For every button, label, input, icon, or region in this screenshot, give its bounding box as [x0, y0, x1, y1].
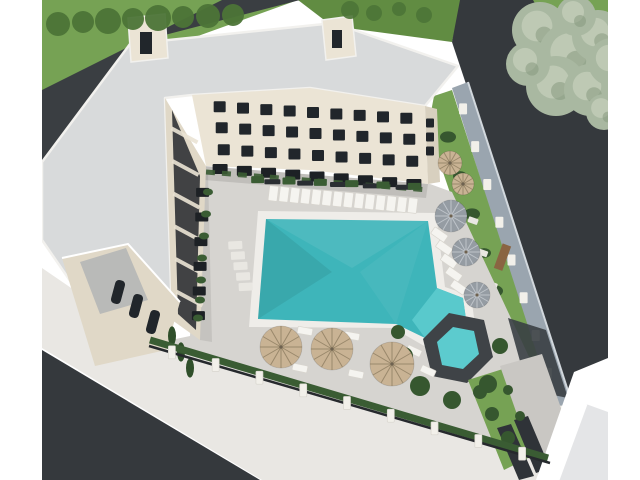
fence-post [168, 346, 175, 359]
potted-plant [503, 385, 513, 395]
hedge-shrub [203, 189, 213, 196]
hedge-planter [408, 183, 421, 190]
window [260, 104, 272, 115]
sunbed [386, 196, 397, 212]
wall-post [508, 255, 516, 266]
sunbed [354, 193, 365, 209]
window [241, 146, 253, 157]
tree [222, 4, 244, 26]
paving-pad [228, 241, 242, 250]
window [377, 111, 389, 122]
sunbed [343, 192, 354, 208]
shrub [410, 376, 430, 396]
window [214, 101, 226, 112]
beige-umbrella [311, 328, 353, 370]
fence-post [431, 422, 438, 435]
ground-patio [194, 262, 207, 271]
gray-umbrella [452, 238, 480, 266]
paving-pad [233, 262, 247, 271]
window [359, 153, 371, 164]
tree [172, 6, 194, 28]
fence-post [475, 435, 482, 448]
bench [264, 179, 280, 184]
sunbed [311, 189, 322, 205]
tree [196, 4, 220, 28]
sunbed [397, 197, 408, 213]
hedge-shrub [193, 315, 203, 322]
window [383, 154, 395, 165]
wall-post [520, 292, 528, 303]
window [312, 150, 324, 161]
wall-post [483, 179, 491, 190]
window [336, 151, 348, 162]
window [310, 128, 322, 139]
fence-post [256, 371, 263, 384]
tree [366, 5, 382, 21]
gray-umbrella [464, 282, 490, 308]
hedge-planter [345, 180, 358, 187]
fence-post [387, 409, 394, 422]
hedge-shrub [196, 277, 206, 284]
window [237, 103, 249, 114]
umbrella-pole [475, 293, 478, 296]
shrub [479, 375, 497, 393]
fence-post [212, 359, 219, 372]
window [218, 144, 230, 155]
roof-access-door [140, 32, 152, 54]
umbrella-pole [279, 345, 282, 348]
sunbed [375, 195, 386, 211]
wall-post [471, 141, 479, 152]
shrub [485, 407, 499, 421]
fence-post [344, 397, 351, 410]
umbrella-pole [448, 161, 451, 164]
beige-umbrella [452, 173, 474, 195]
hedge-planter [314, 179, 327, 186]
window [380, 132, 392, 143]
window [354, 110, 366, 121]
tree [46, 12, 70, 36]
potted-plant [515, 411, 525, 421]
left-margin [0, 0, 42, 480]
shrub [391, 325, 405, 339]
tree [72, 11, 94, 33]
rendering-canvas [0, 0, 640, 480]
wall-post [459, 103, 467, 114]
sunbed [268, 185, 279, 201]
window [330, 108, 342, 119]
window [265, 147, 277, 158]
hedge-shrub [197, 255, 207, 262]
fence-post [519, 447, 526, 460]
window [356, 131, 368, 142]
aerial-rendering [0, 0, 640, 480]
window [284, 106, 296, 117]
cypress-tree [186, 358, 194, 377]
window [216, 122, 228, 133]
sunbed [407, 198, 418, 214]
large-tree-shade [525, 62, 538, 75]
beige-umbrella [438, 151, 462, 175]
gray-umbrella [435, 200, 467, 232]
window [426, 119, 434, 128]
beige-umbrella [370, 342, 414, 386]
bench [330, 182, 346, 187]
bench [297, 181, 313, 186]
sunbed [364, 194, 375, 210]
window [333, 129, 345, 140]
sunbed [289, 187, 300, 203]
shrub [440, 131, 456, 142]
tree [145, 5, 171, 31]
umbrella-pole [449, 214, 452, 217]
large-tree-shade [574, 15, 586, 27]
gable-windows [426, 119, 434, 156]
hedge-planter [283, 178, 296, 185]
paving-pad [231, 251, 245, 260]
window [288, 149, 300, 160]
paving-pad [239, 282, 253, 291]
hedge-shrub [195, 297, 205, 304]
fence-post [300, 384, 307, 397]
tree [95, 8, 121, 34]
wall-post [495, 217, 503, 228]
paving-pad [236, 272, 250, 281]
hedge-shrub [201, 211, 211, 218]
window [239, 124, 251, 135]
window [400, 113, 412, 124]
window [286, 127, 298, 138]
umbrella-pole [464, 250, 467, 253]
window [307, 107, 319, 118]
window [426, 133, 434, 142]
sunbed [300, 188, 311, 204]
tree [392, 2, 406, 16]
bench [363, 183, 379, 188]
tree [416, 7, 432, 23]
window [406, 156, 418, 167]
tree [341, 1, 359, 19]
sunbed [332, 191, 343, 207]
umbrella-pole [330, 347, 333, 350]
umbrella-pole [461, 182, 464, 185]
umbrella-pole [390, 362, 393, 365]
window [263, 125, 275, 136]
shrub [492, 338, 508, 354]
window [403, 134, 415, 145]
window [426, 147, 434, 156]
sunbed [322, 190, 333, 206]
hedge-planter [251, 176, 264, 183]
shrub [443, 391, 461, 409]
sunbed [279, 186, 290, 202]
tree [122, 8, 144, 30]
roof-access-door [332, 30, 342, 48]
hedge-shrub [199, 233, 209, 240]
beige-umbrella [260, 326, 302, 368]
right-margin [608, 0, 640, 480]
hedge-planter [377, 182, 390, 189]
ground-patio [193, 287, 206, 296]
